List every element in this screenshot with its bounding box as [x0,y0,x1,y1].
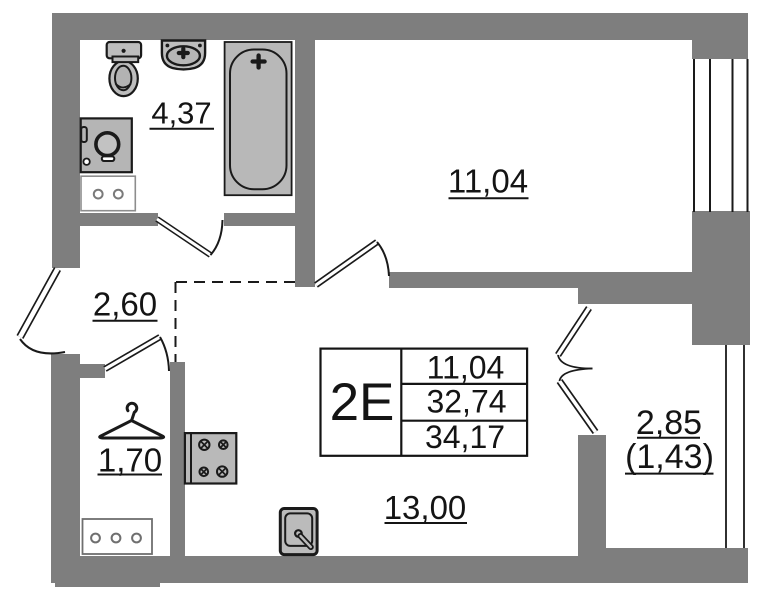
svg-text:32,74: 32,74 [426,384,506,420]
svg-text:1,70: 1,70 [98,442,162,479]
svg-text:2,60: 2,60 [93,286,157,323]
svg-text:13,00: 13,00 [384,489,467,526]
svg-text:34,17: 34,17 [425,419,505,455]
svg-text:11,04: 11,04 [427,350,505,386]
svg-text:(1,43): (1,43) [625,438,714,476]
svg-text:4,37: 4,37 [151,96,211,131]
svg-text:11,04: 11,04 [448,163,528,200]
svg-text:2,85: 2,85 [636,404,702,442]
svg-text:2Е: 2Е [330,373,395,432]
